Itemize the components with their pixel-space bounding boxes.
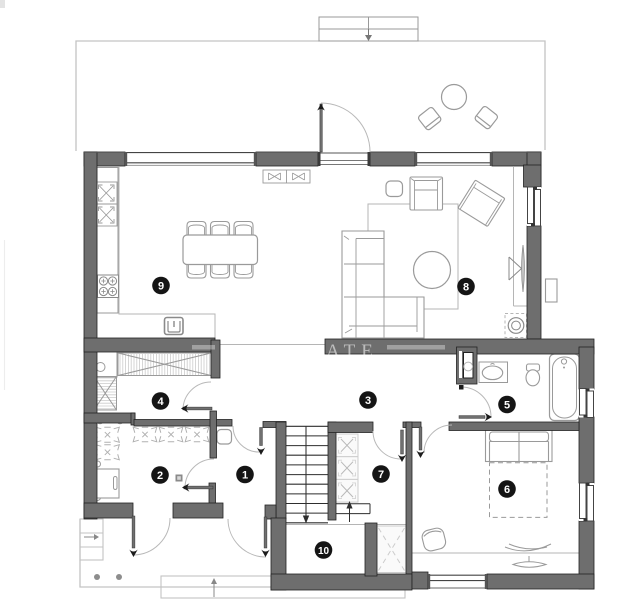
svg-text:ATE: ATE [326, 341, 379, 362]
svg-text:5: 5 [504, 399, 510, 411]
svg-text:8: 8 [463, 281, 469, 293]
svg-text:1: 1 [242, 469, 248, 481]
svg-text:10: 10 [318, 546, 330, 557]
svg-text:6: 6 [504, 484, 510, 496]
svg-text:2: 2 [157, 470, 163, 482]
svg-text:3: 3 [365, 395, 371, 407]
svg-text:7: 7 [378, 469, 384, 481]
svg-text:9: 9 [158, 280, 164, 292]
svg-text:4: 4 [157, 396, 164, 408]
